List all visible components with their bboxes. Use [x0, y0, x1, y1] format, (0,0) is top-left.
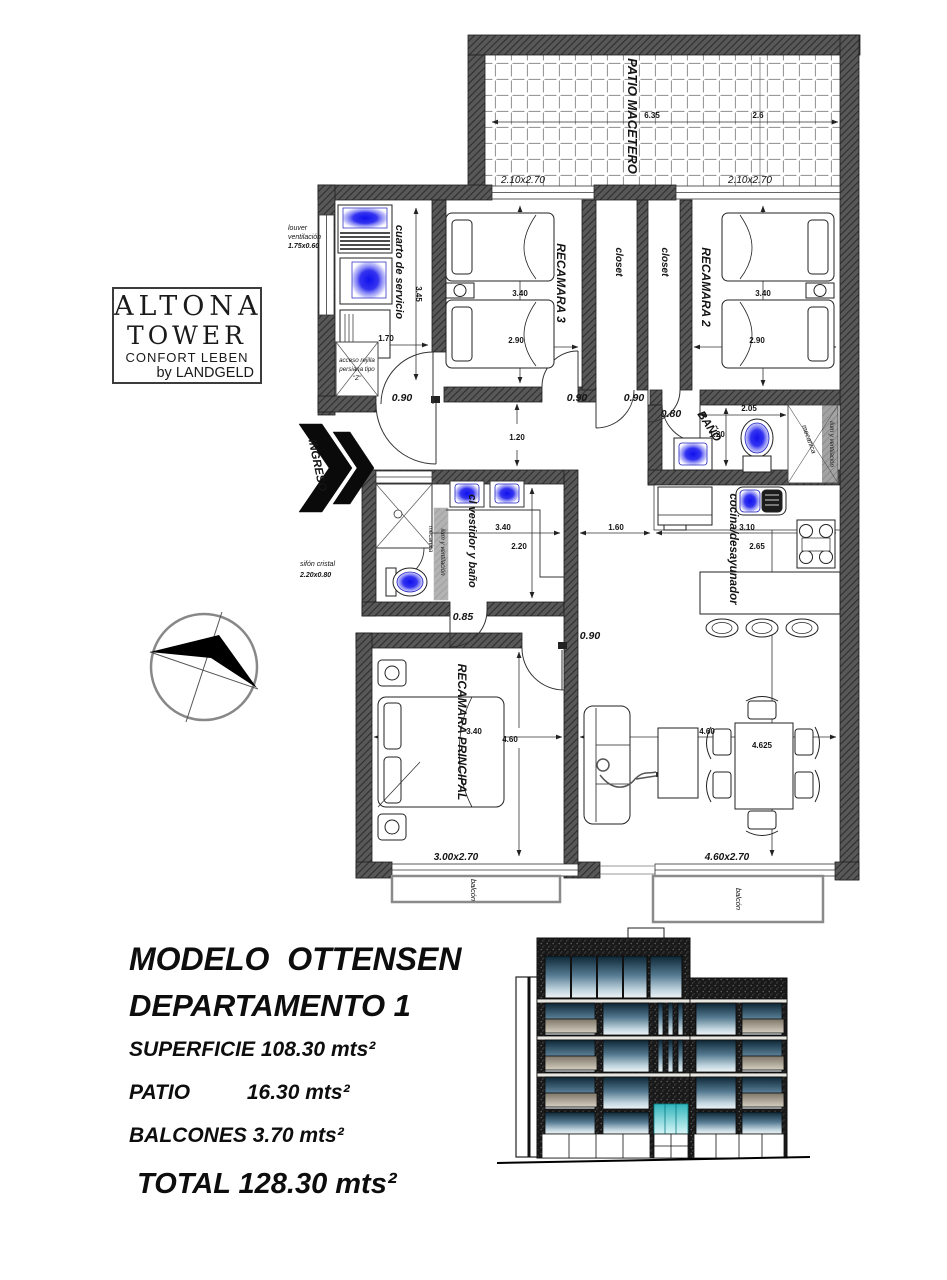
louver-note-line1: louver: [288, 225, 308, 232]
patio-window-left-dim: 2.10x2.70: [500, 175, 545, 186]
bedroom2-label: RECAMARA 2: [699, 247, 713, 327]
summary-label: SUPERFICIE: [129, 1038, 255, 1061]
dressing-dim-depth: 2.20: [511, 542, 527, 551]
kitchen-dim-depth: 2.65: [749, 542, 765, 551]
siphon-note-line2: 2.20x0.80: [299, 572, 331, 579]
summary-row-superficie: SUPERFICIE 108.30 mts²: [129, 1038, 489, 1061]
bathroom-door-dim: 0.80: [661, 408, 682, 420]
kitchen-dim-width: 3.10: [739, 523, 755, 532]
access-grille-line3: "Z": [353, 375, 362, 382]
dressing-vent-label: ilum y ventilación: [439, 528, 446, 576]
service-door-dim: 0.90: [392, 392, 413, 404]
master-door-dim: 0.90: [580, 630, 601, 642]
kitchen-fixtures: [654, 485, 840, 637]
living-dim-depth: 4.625: [752, 741, 773, 750]
bedroom3-dim-depth: 3.40: [512, 289, 528, 298]
balcony-right-label: balcón: [734, 888, 743, 910]
master-dim-width: 3.40: [466, 727, 482, 736]
closet-right-label: closet: [659, 248, 670, 278]
hall-dim: 1.20: [509, 433, 525, 442]
project-name-line2: TOWER: [114, 322, 260, 350]
service-dim-width: 1.70: [378, 334, 394, 343]
patio-dim-b: 2.6: [752, 111, 764, 120]
living-dim-width: 4.60: [699, 727, 715, 736]
summary-label: PATIO: [129, 1081, 241, 1104]
total-label: TOTAL: [137, 1168, 230, 1200]
closet-door-dim: 0.90: [624, 392, 645, 404]
patio-floor: [485, 55, 840, 194]
bedroom2-beds: [722, 213, 834, 368]
bedroom2-dim-width: 2.90: [749, 336, 765, 345]
project-tagline: CONFORT LEBEN: [114, 350, 260, 365]
summary-row-balcones: BALCONES 3.70 mts²: [129, 1124, 489, 1147]
louver-note-line2: ventilación: [288, 234, 321, 241]
summary-row-patio: PATIO 16.30 mts²: [129, 1081, 489, 1104]
bedroom3-dim-width: 2.90: [508, 336, 524, 345]
total-value: 128.30 mts²: [239, 1168, 397, 1200]
summary-label: BALCONES: [129, 1124, 247, 1147]
master-bed: [378, 660, 504, 840]
living-dining-furniture: [584, 697, 820, 836]
model-name: MODELO OTTENSEN: [129, 940, 489, 978]
bedroom3-label: RECAMARA 3: [554, 243, 568, 323]
bedroom2-dim-depth: 3.40: [755, 289, 771, 298]
summary-value: 16.30 mts²: [247, 1081, 350, 1104]
bedroom3-beds: [446, 213, 554, 368]
bathroom-vent-label: ilum y ventilación: [828, 421, 834, 467]
dressing-shaft-label: mecanica: [427, 526, 434, 553]
floor-plan-sheet: PATIO MACETERO 6.35 2.6 2.10x2.70 2.10x2…: [0, 0, 947, 1280]
unit-summary: MODELO OTTENSEN DEPARTAMENTO 1 SUPERFICI…: [129, 940, 489, 1201]
balconies: [392, 876, 823, 922]
louver-note-line3: 1.75x0.60: [288, 243, 319, 250]
access-grille-line1: acceso rejilla: [339, 357, 375, 364]
balcony-left-label: balcón: [469, 879, 478, 901]
master-dim-depth: 4.60: [502, 735, 518, 744]
kitchen-label: cocina/desayunador: [727, 493, 739, 605]
bedroom3-door-dim: 0.90: [567, 392, 588, 404]
building-elevation: [497, 928, 810, 1163]
patio-label: PATIO MACETERO: [625, 58, 640, 174]
closet-left-label: closet: [613, 248, 624, 278]
master-window-dim: 3.00x2.70: [434, 852, 479, 863]
project-name-line1: ALTONA: [114, 292, 260, 322]
summary-total: TOTAL 128.30 mts²: [129, 1167, 489, 1201]
dressing-label: cl vestidor y baño: [466, 494, 478, 588]
bathroom-dim-depth: 1.20: [709, 430, 725, 439]
access-grille-line2: persiana tipo: [338, 366, 375, 373]
project-title-box: ALTONA TOWER CONFORT LEBEN by LANDGELD: [112, 287, 262, 384]
unit-name: DEPARTAMENTO 1: [129, 988, 489, 1024]
patio-window-right-dim: 2.10x2.70: [727, 175, 772, 186]
siphon-note-line1: sifón cristal: [300, 561, 335, 568]
service-room-label: cuarto de servicio: [393, 225, 405, 319]
living-window-dim: 4.60x2.70: [704, 852, 750, 863]
project-byline: by LANDGELD: [114, 365, 260, 381]
north-compass-icon: [150, 612, 258, 722]
service-dim-depth: 3.45: [414, 286, 423, 302]
patio-dim-a: 6.35: [644, 111, 660, 120]
summary-value: 3.70 mts²: [253, 1124, 344, 1147]
summary-value: 108.30 mts²: [261, 1038, 375, 1061]
dressing-dim-width: 3.40: [495, 523, 511, 532]
kitchen-hall-dim: 1.60: [608, 523, 624, 532]
dressing-door-dim: 0.85: [453, 611, 474, 623]
bathroom-dim-width: 2.05: [741, 404, 757, 413]
